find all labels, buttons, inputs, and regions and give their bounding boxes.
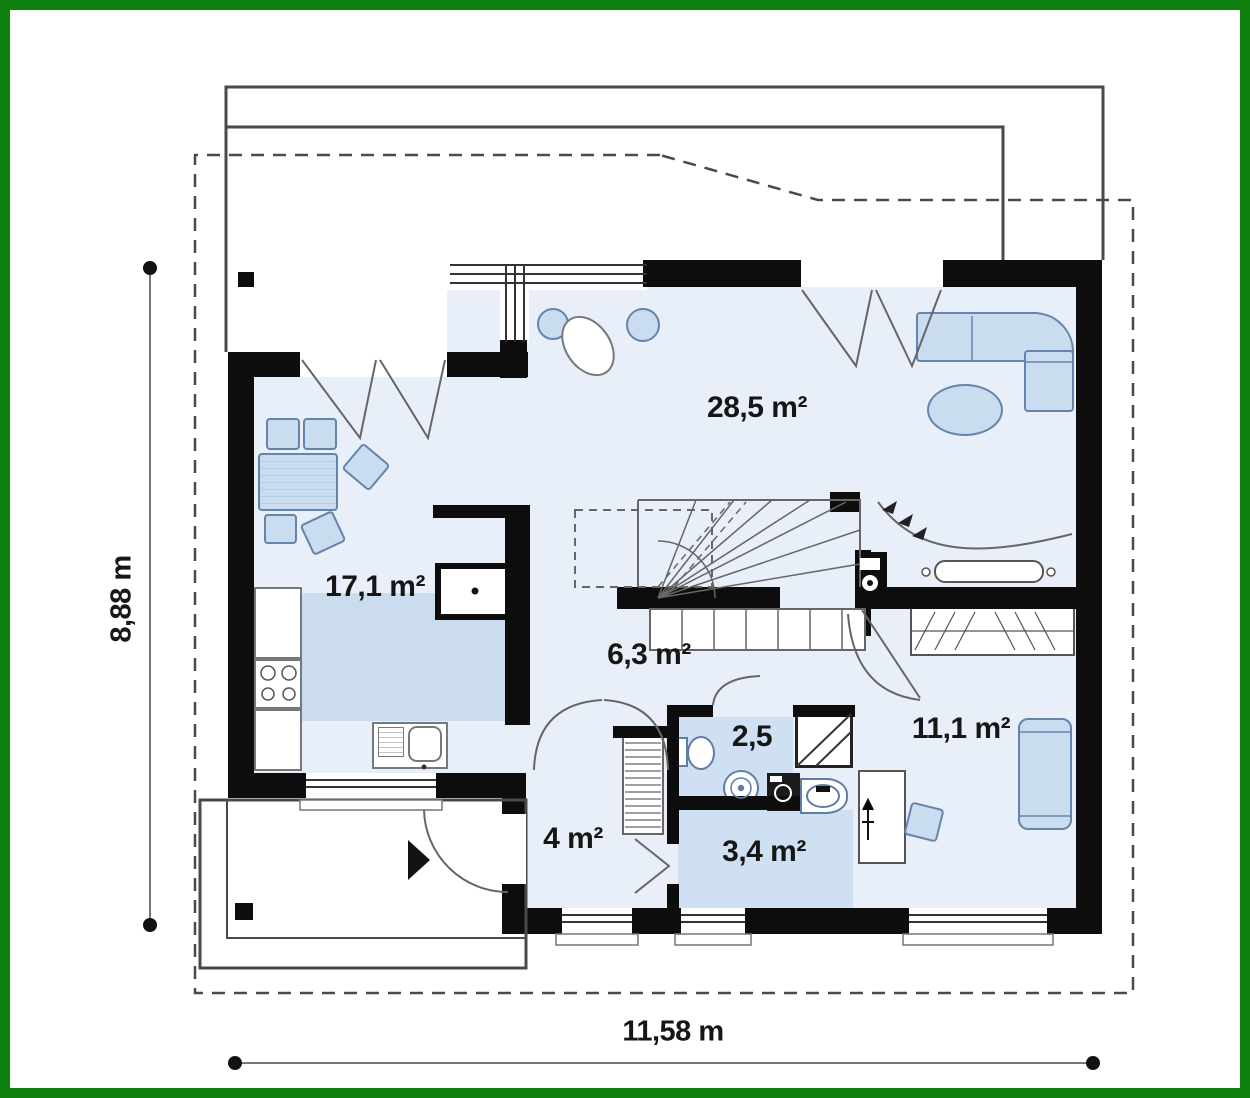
wall-segment [745, 908, 909, 934]
bathroom-basin [800, 778, 848, 814]
stool [626, 308, 660, 342]
wall-segment [500, 340, 527, 378]
wall-segment [617, 587, 780, 609]
floor-plan-canvas: 28,5 m² 17,1 m² 6,3 m² 2,5 11,1 m² 4 m² … [0, 0, 1250, 1098]
wall-segment [1047, 908, 1102, 934]
wall-segment [502, 798, 526, 814]
corner-sofa [1024, 350, 1074, 412]
dining-chair [266, 418, 300, 450]
hall-wardrobe [622, 735, 664, 835]
room-label-kitchen: 17,1 m² [325, 570, 425, 604]
sofa-bed [1018, 718, 1072, 830]
exterior-patch-entry [253, 798, 502, 908]
porch-column [235, 903, 253, 920]
wall-segment [667, 796, 679, 844]
sink-basin [408, 726, 442, 762]
bedroom-wardrobe [910, 607, 1075, 656]
wall-segment [613, 726, 667, 738]
wall-segment [433, 505, 530, 518]
room-label-living: 28,5 m² [707, 391, 807, 425]
room-label-wc: 2,5 [732, 720, 772, 754]
room-label-bedroom: 11,1 m² [912, 712, 1010, 746]
toilet-bowl [687, 736, 715, 770]
dining-table [258, 453, 338, 511]
dimension-label-width: 11,58 m [622, 1016, 723, 1049]
wall-segment [643, 260, 801, 287]
corner-window-band-v [500, 262, 529, 342]
wall-segment [855, 550, 871, 636]
kitchen-counter [254, 709, 302, 771]
sink-drainer [378, 727, 404, 757]
wall-segment [502, 908, 564, 934]
wall-segment [667, 705, 679, 810]
wall-segment [862, 587, 1076, 609]
wall-segment [632, 908, 682, 934]
corner-window-band-h [447, 260, 647, 290]
wall-segment [228, 773, 306, 798]
cooktop [254, 659, 302, 709]
dining-chair [303, 418, 337, 450]
wall-segment [667, 884, 679, 908]
fireplace [435, 563, 515, 620]
wall-segment [793, 705, 855, 717]
room-label-bath: 3,4 m² [722, 835, 806, 869]
desk [858, 770, 906, 864]
room-label-hall: 6,3 m² [607, 638, 691, 672]
dimension-label-depth: 8,88 m [106, 555, 139, 642]
coffee-table [927, 384, 1003, 436]
wall-segment [505, 518, 530, 725]
wall-segment [1076, 260, 1102, 934]
dining-chair [264, 514, 297, 544]
kitchen-counter [254, 587, 302, 659]
wall-segment [667, 796, 800, 810]
wall-segment [228, 352, 254, 798]
terrace-column [238, 272, 254, 287]
wall-segment [436, 773, 526, 798]
shower [795, 712, 853, 768]
room-label-entry: 4 m² [543, 822, 603, 856]
wall-segment [830, 492, 860, 512]
